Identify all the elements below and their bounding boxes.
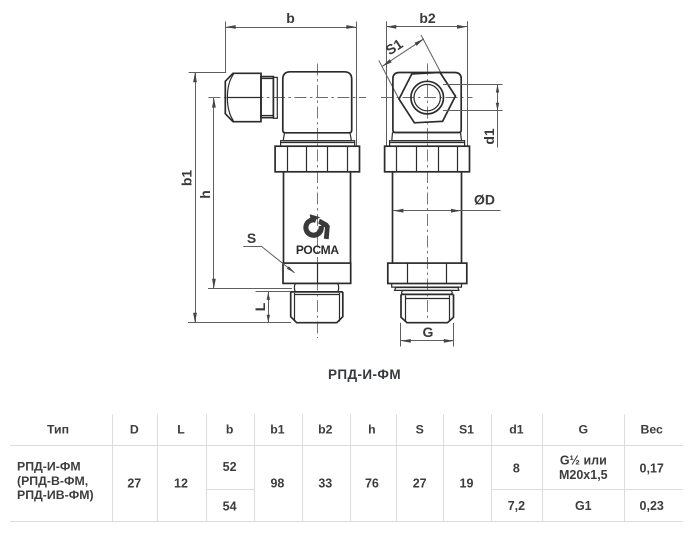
svg-text:8: 8 (513, 462, 520, 476)
svg-text:76: 76 (365, 476, 379, 490)
svg-text:G1: G1 (575, 499, 592, 513)
svg-text:ØD: ØD (474, 192, 495, 208)
svg-text:b1: b1 (270, 423, 285, 437)
svg-text:h: h (197, 190, 213, 199)
svg-text:7,2: 7,2 (508, 499, 525, 513)
svg-text:(РПД-В-ФМ,: (РПД-В-ФМ, (17, 474, 88, 488)
svg-text:M20x1,5: M20x1,5 (559, 468, 608, 482)
svg-text:b2: b2 (419, 10, 436, 26)
svg-text:Вес: Вес (640, 423, 663, 437)
svg-text:G: G (579, 423, 589, 437)
svg-text:b1: b1 (178, 170, 194, 187)
svg-text:D: D (130, 423, 139, 437)
svg-text:L: L (252, 302, 268, 311)
svg-text:G: G (423, 324, 434, 340)
svg-text:Тип: Тип (47, 423, 69, 437)
svg-text:d1: d1 (509, 423, 524, 437)
svg-text:b: b (226, 423, 234, 437)
svg-text:h: h (368, 423, 376, 437)
svg-text:L: L (177, 423, 185, 437)
svg-text:РПД-ИВ-ФМ): РПД-ИВ-ФМ) (17, 488, 94, 502)
svg-text:27: 27 (127, 476, 141, 490)
svg-text:d1: d1 (481, 128, 497, 145)
svg-text:0,17: 0,17 (640, 462, 664, 476)
svg-text:G½ или: G½ или (560, 454, 607, 468)
svg-text:b2: b2 (318, 423, 333, 437)
svg-text:19: 19 (460, 476, 474, 490)
svg-text:РОСМА: РОСМА (296, 243, 339, 257)
svg-text:33: 33 (318, 476, 332, 490)
svg-text:12: 12 (174, 476, 188, 490)
svg-text:0,23: 0,23 (640, 499, 664, 513)
svg-text:98: 98 (270, 476, 284, 490)
svg-text:S: S (247, 230, 256, 246)
svg-text:27: 27 (413, 476, 427, 490)
svg-text:S: S (416, 423, 424, 437)
svg-text:РПД-И-ФМ: РПД-И-ФМ (17, 460, 81, 474)
svg-text:54: 54 (223, 499, 237, 513)
svg-text:b: b (286, 10, 295, 26)
svg-text:РПД-И-ФМ: РПД-И-ФМ (328, 367, 401, 382)
svg-text:S1: S1 (459, 423, 474, 437)
svg-text:52: 52 (223, 460, 237, 474)
